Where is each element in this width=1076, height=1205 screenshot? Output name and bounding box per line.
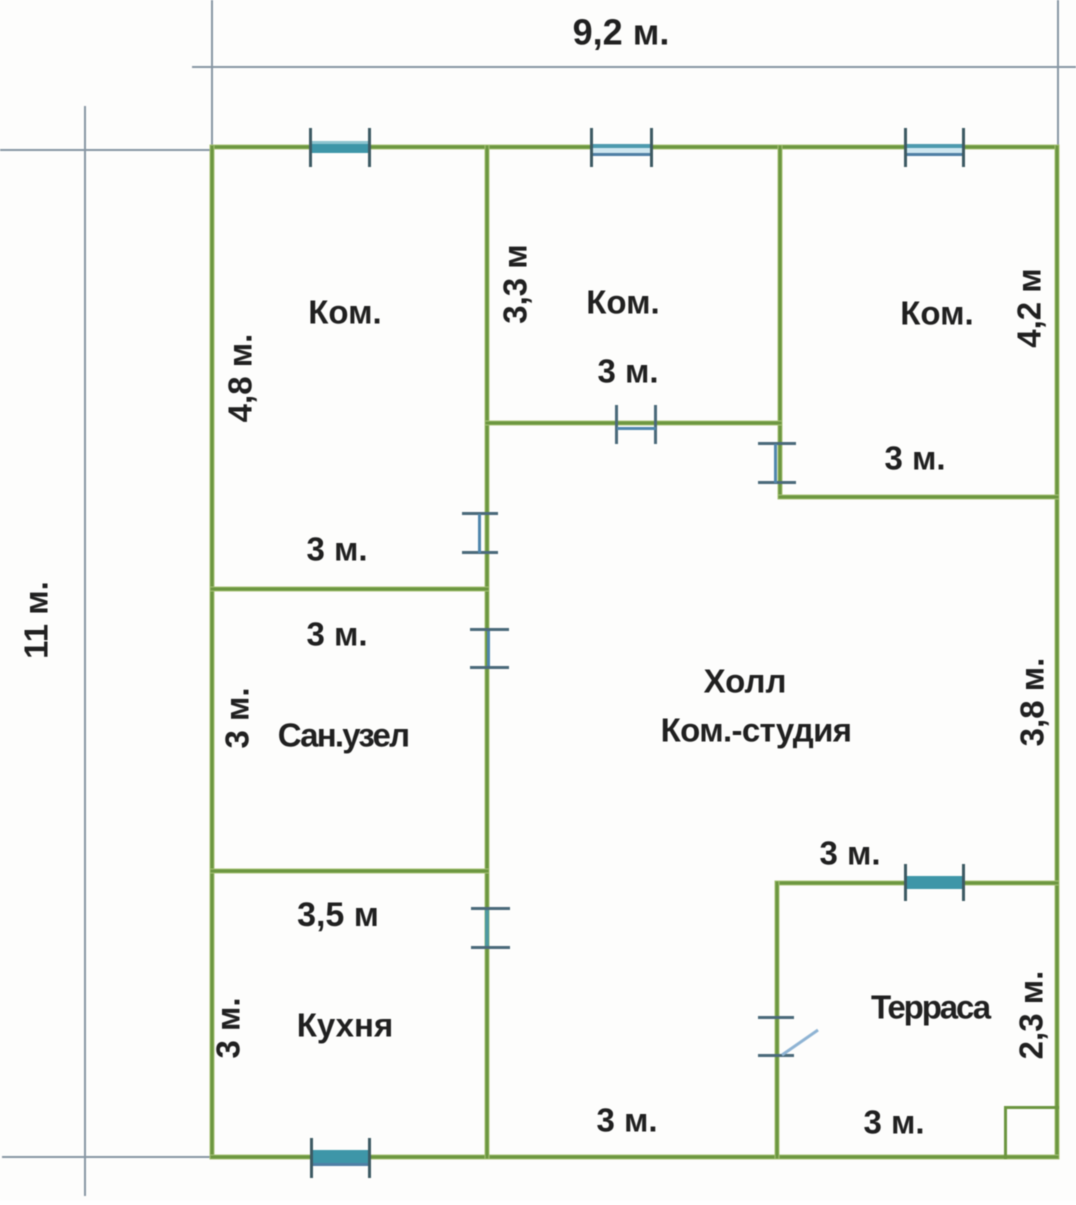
svg-text:3 м.: 3 м. bbox=[219, 687, 256, 748]
svg-text:3 м.: 3 м. bbox=[596, 1102, 657, 1139]
svg-text:Ком.: Ком. bbox=[586, 284, 659, 321]
svg-text:3,8 м.: 3,8 м. bbox=[1014, 658, 1051, 747]
svg-text:3,3 м: 3,3 м bbox=[497, 244, 534, 323]
svg-text:3 м.: 3 м. bbox=[597, 353, 658, 390]
svg-text:3 м.: 3 м. bbox=[884, 440, 945, 477]
svg-text:4,8 м.: 4,8 м. bbox=[222, 334, 259, 423]
svg-text:Ком.-студия: Ком.-студия bbox=[661, 712, 852, 749]
svg-text:Холл: Холл bbox=[704, 663, 787, 700]
svg-text:3 м.: 3 м. bbox=[306, 531, 367, 568]
svg-text:Кухня: Кухня bbox=[297, 1007, 393, 1044]
svg-text:2,3 м.: 2,3 м. bbox=[1013, 971, 1050, 1060]
svg-text:Терраса: Терраса bbox=[871, 989, 992, 1026]
svg-text:9,2 м.: 9,2 м. bbox=[573, 12, 670, 53]
svg-text:3 м.: 3 м. bbox=[210, 997, 247, 1058]
svg-text:3 м.: 3 м. bbox=[819, 835, 880, 872]
svg-text:3,5 м: 3,5 м bbox=[297, 896, 379, 934]
svg-text:Ком.: Ком. bbox=[900, 295, 973, 332]
svg-text:Ком.: Ком. bbox=[308, 294, 381, 331]
svg-text:3 м.: 3 м. bbox=[306, 616, 367, 653]
svg-text:3 м.: 3 м. bbox=[863, 1104, 924, 1141]
svg-text:11 м.: 11 м. bbox=[18, 581, 55, 659]
svg-text:4,2 м: 4,2 м bbox=[1011, 268, 1048, 347]
svg-text:Сан.узел: Сан.узел bbox=[278, 717, 409, 754]
